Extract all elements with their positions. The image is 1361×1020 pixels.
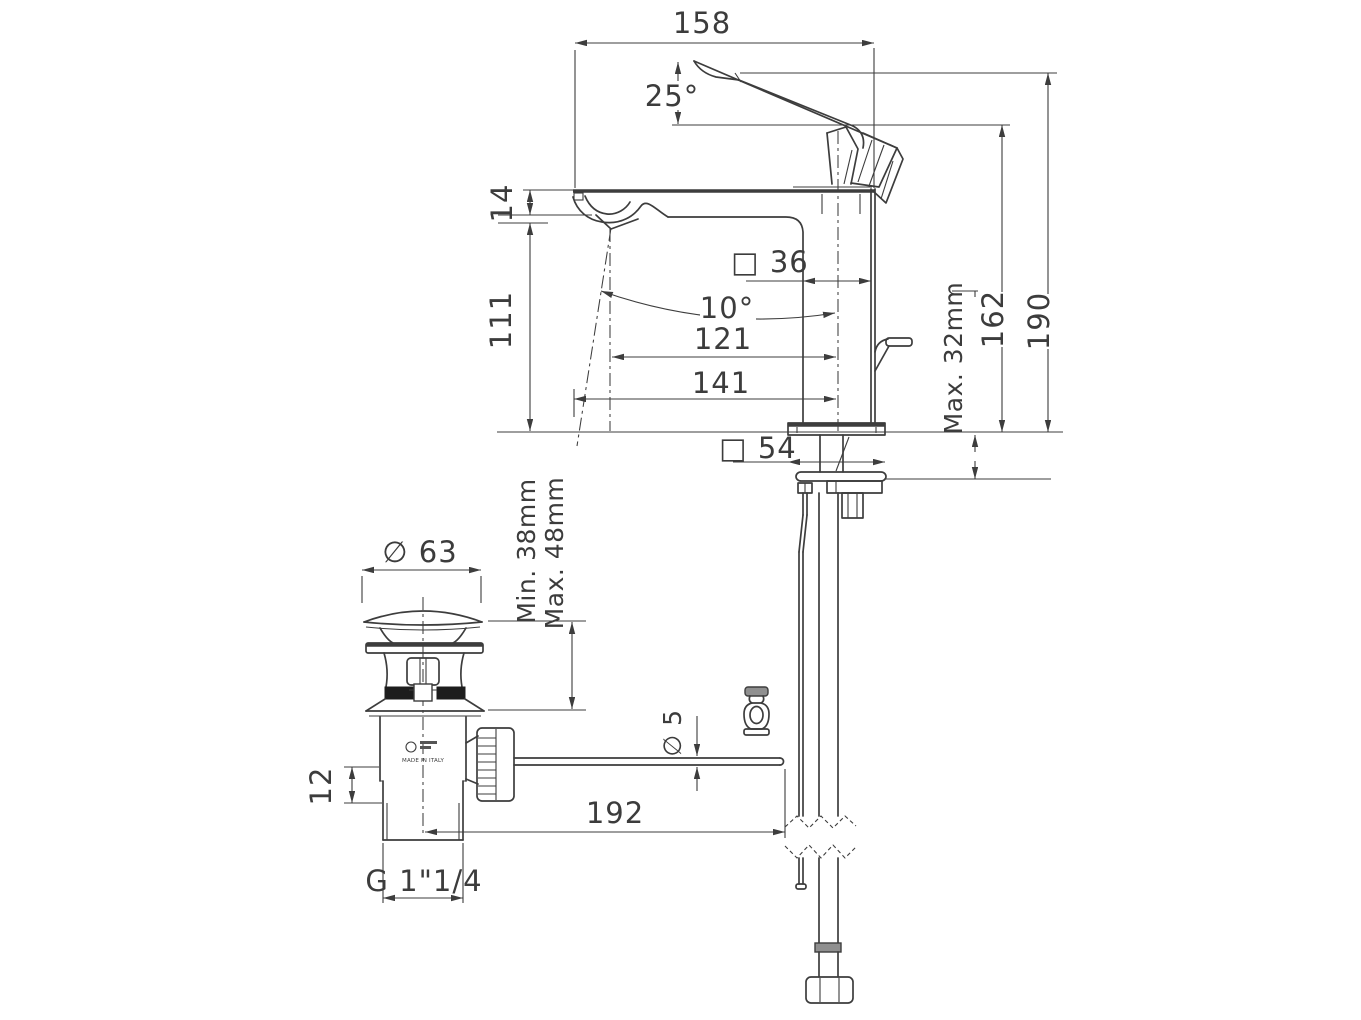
supply-hose [806,493,853,1003]
popup-lever [875,338,912,371]
dim-190-label: 190 [1022,292,1056,350]
dim-25-label: 25° [645,79,699,113]
dimension-25deg: 25° [645,62,699,124]
dimension-rod5: ∅ 5 [658,709,697,791]
handle-neck-hatch [844,150,852,184]
stud-bolt [842,493,863,518]
dimension-63: ∅ 63 [362,535,481,603]
dim-162-label: 162 [976,290,1010,348]
shank [820,435,843,472]
break-lines [785,816,856,858]
waste-seal-left [385,687,413,699]
mounting-hardware [796,435,886,518]
dim-14-label: 14 [485,184,519,223]
technical-drawing-page: MADE IN ITALY 158 25° 14 111 □ 36 [0,0,1361,1020]
dimension-10deg: 10° [601,291,835,325]
center-lines [423,131,838,836]
dim-max48-label: Max. 48mm [540,477,569,630]
waste-seal-right [437,687,465,699]
faucet-technical-drawing: MADE IN ITALY 158 25° 14 111 □ 36 [0,0,1361,1020]
handle-neck-front [827,133,832,184]
popup-waste: MADE IN ITALY [364,611,784,840]
faucet-handle [694,61,903,203]
popup-rod-horizontal [514,758,780,765]
dim-thread-label: G 1"1/4 [365,864,482,898]
hose-hex-nut [806,977,853,1003]
cartridge-stubs [822,194,860,214]
hose-collar [815,943,841,952]
handle-end-hatch [858,140,884,186]
dim-158-label: 158 [673,6,731,40]
waste-mechanism [414,684,432,701]
spout-tip-notch [574,193,583,200]
brand-logo-icon [406,742,416,752]
dimension-111: 111 [484,223,548,431]
dimension-min38-max48: Min. 38mm Max. 48mm [488,477,586,710]
dimension-192: 192 [425,769,785,838]
dimension-54: □ 54 [719,431,885,465]
dim-max32-label: Max. 32mm [939,282,968,435]
dim-121-label: 121 [694,322,752,356]
dim-min38-label: Min. 38mm [512,478,541,623]
handle-lower-edge [739,80,853,126]
dim-141-label: 141 [692,366,750,400]
knob-base [744,729,769,735]
dimension-141: 141 [574,366,836,417]
popup-knob [744,687,769,735]
dimension-thread: G 1"1/4 [365,843,482,903]
dim-63-label: ∅ 63 [382,535,457,569]
dim-54-label: □ 54 [719,431,797,465]
dim-12-label: 12 [304,767,338,806]
rod-end-cap [780,758,784,765]
dim-10-label: 10° [700,291,754,325]
aerator-inner [585,196,630,214]
dimension-36: □ 36 [731,245,871,281]
dim-5-label: ∅ 5 [658,709,687,756]
dim-192-label: 192 [586,796,644,830]
horseshoe-washer [796,472,886,481]
mounting-nut-right [827,481,882,493]
rod-foot [796,884,806,889]
dim-111-label: 111 [484,291,518,349]
knob-cap [745,687,768,696]
base-plate [788,423,885,435]
dimension-12: 12 [304,767,382,806]
made-in-label: MADE IN ITALY [402,758,445,764]
dim-36-label: □ 36 [731,245,809,279]
popup-rod-vertical [796,493,807,889]
